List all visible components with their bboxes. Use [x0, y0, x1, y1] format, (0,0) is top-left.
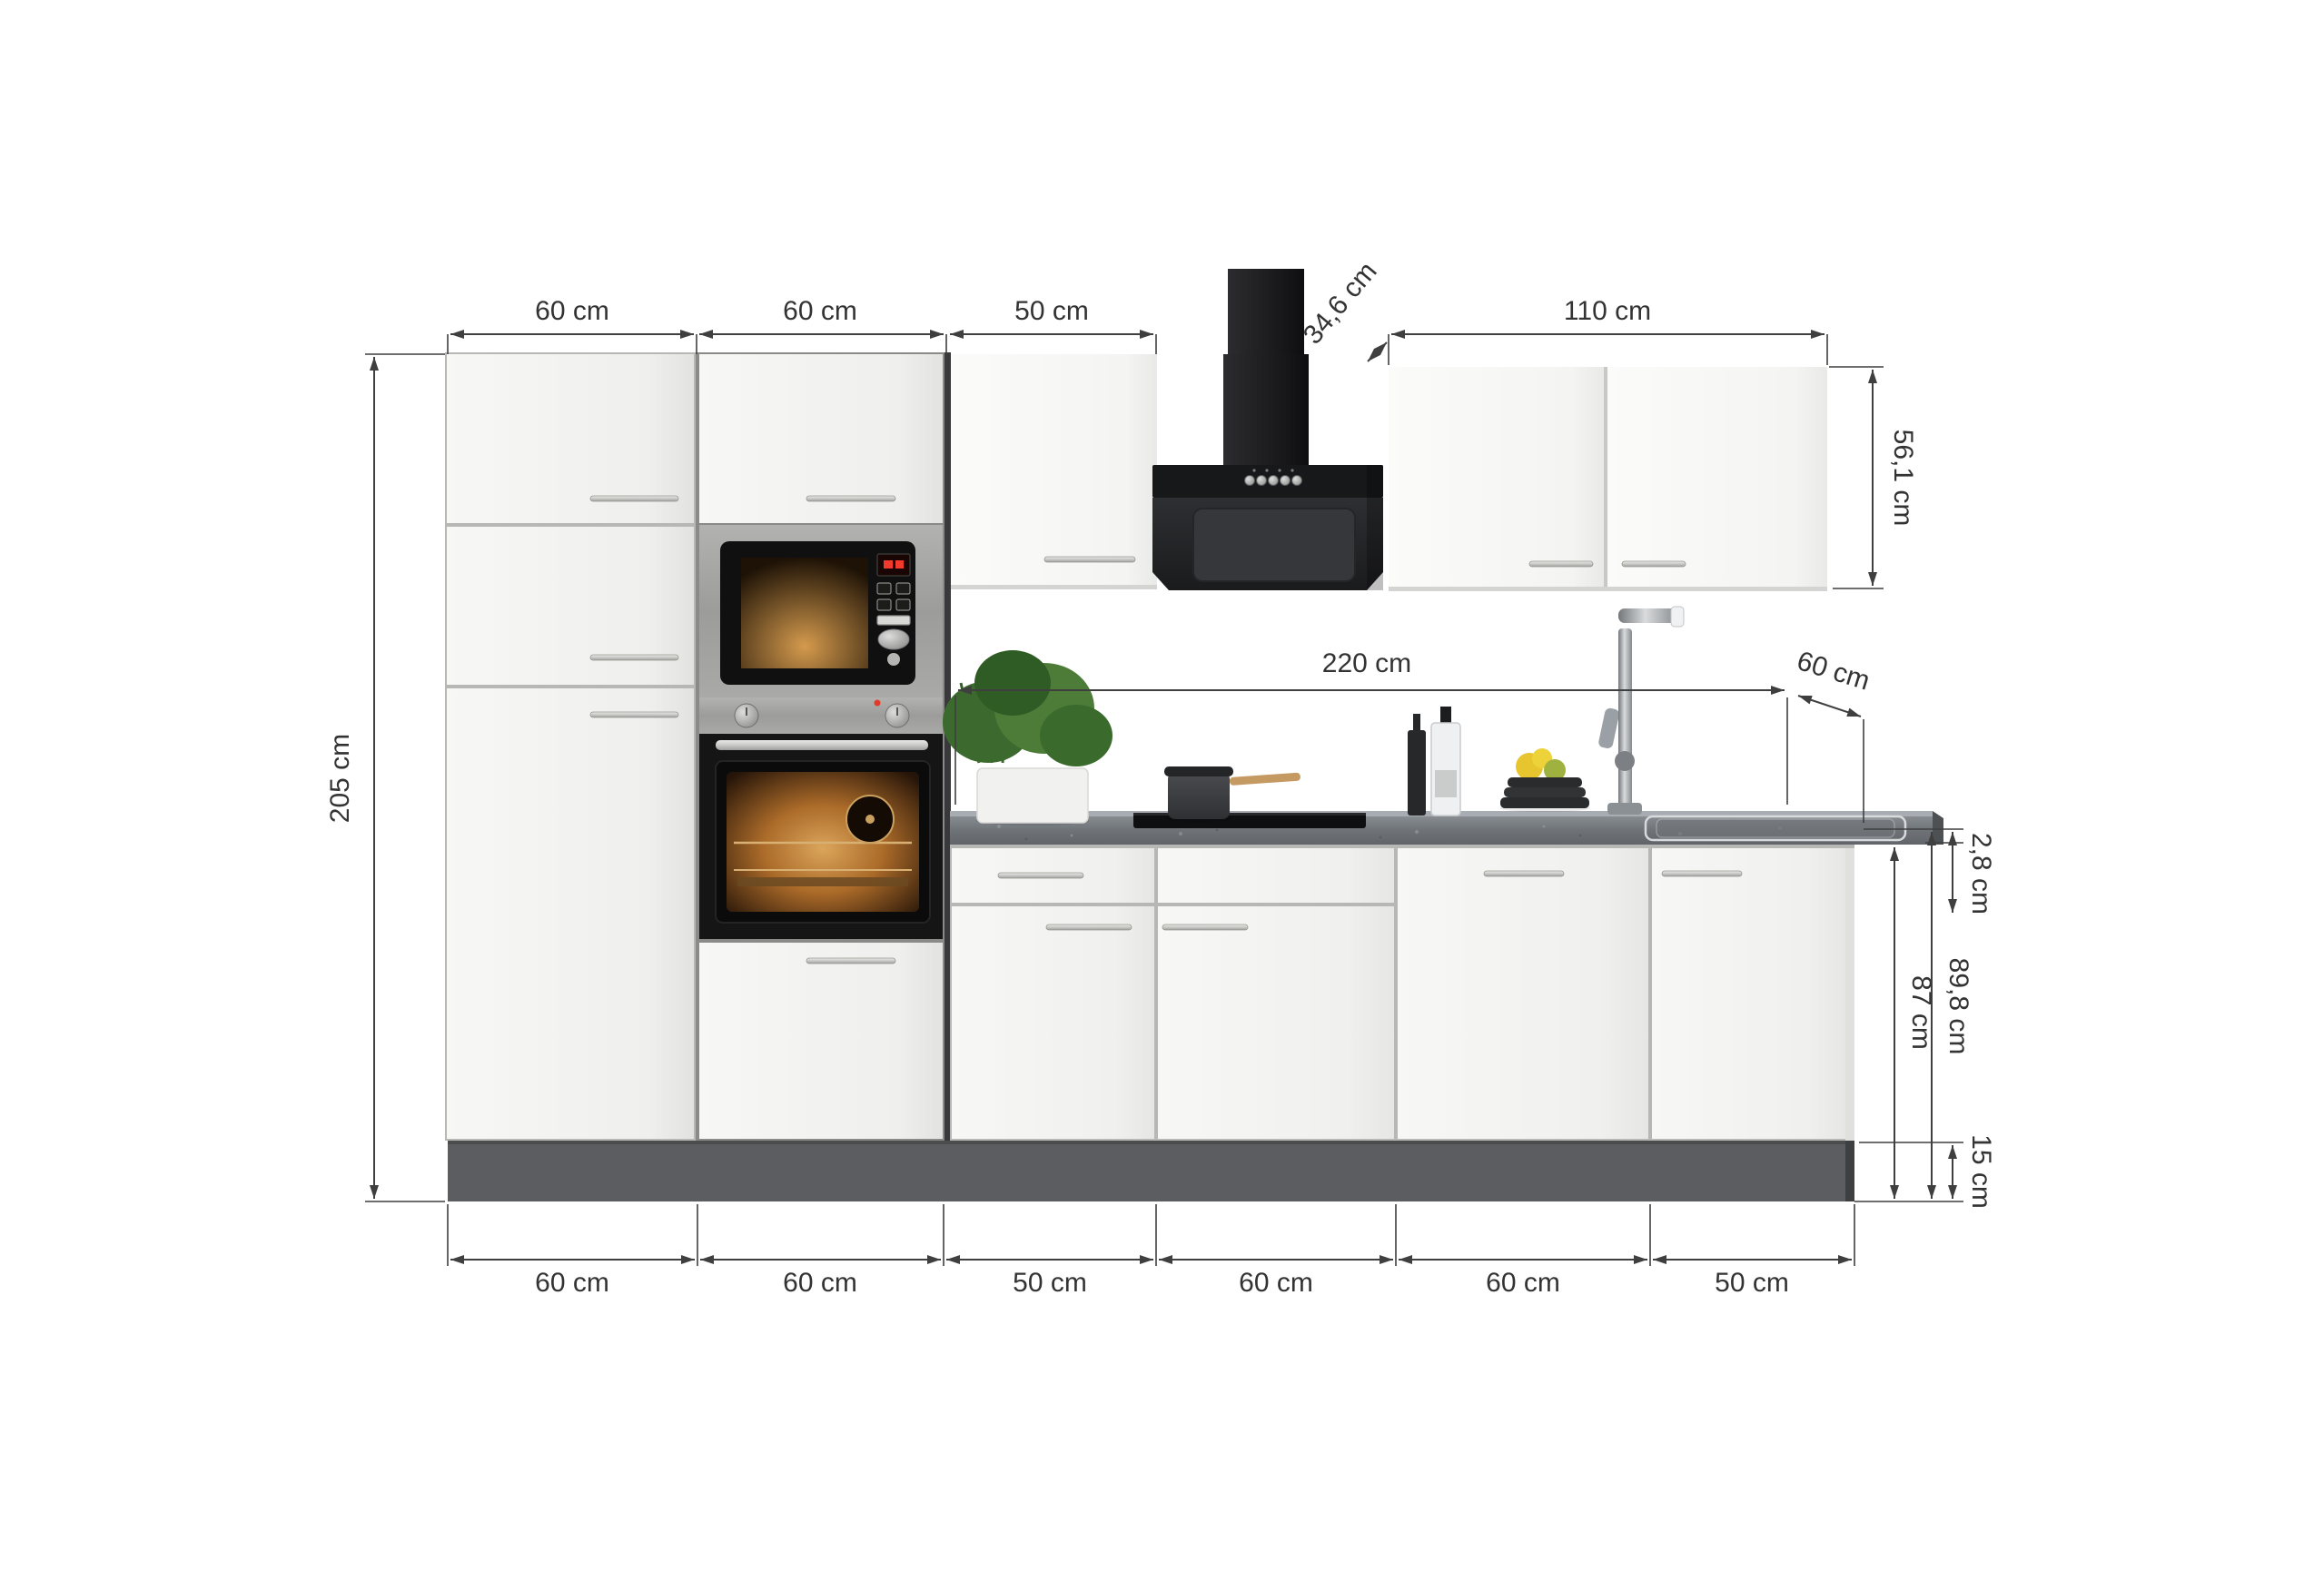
microwave	[699, 525, 943, 697]
dim-label-wall-depth: 34,6 cm	[1298, 256, 1383, 350]
wall-cabinet-110	[1389, 367, 1827, 591]
tower-door-bottom	[699, 943, 943, 1139]
herb-plant	[943, 650, 1113, 823]
faucet-lever	[1597, 707, 1620, 749]
dim-wall-cabinet-depth: 34,6 cm	[1298, 256, 1387, 361]
door-handle	[1046, 924, 1132, 930]
dim-label-worktop-height: 89,8 cm	[1943, 958, 1973, 1055]
door-handle	[806, 958, 895, 964]
door-handle	[1622, 561, 1686, 567]
door-handle	[1162, 924, 1248, 930]
oven-indicator-light	[875, 700, 881, 707]
base-door-50	[952, 906, 1154, 1139]
appliance-tower	[696, 352, 951, 1141]
door-handle	[590, 496, 678, 501]
wall-cabinet-50	[951, 354, 1157, 589]
dim-label-worktop-depth: 60 cm	[1794, 646, 1874, 696]
fruit-bowl	[1499, 748, 1590, 812]
dim-label-top-3: 50 cm	[1014, 296, 1089, 326]
tower-side-panel	[944, 352, 951, 1141]
oven-control-strip	[699, 697, 943, 734]
tall-cabinet	[445, 352, 697, 1141]
base-side-panel	[1845, 848, 1854, 1141]
plant-pot	[977, 768, 1088, 823]
dim-label-plinth-height: 15 cm	[1966, 1134, 1996, 1209]
dim-label-bottom-6: 50 cm	[1715, 1268, 1789, 1298]
dim-worktop-depth: 60 cm	[1787, 646, 1874, 823]
microwave-dial	[878, 629, 909, 649]
dim-label-top-2: 60 cm	[783, 296, 857, 326]
diagram-canvas: 60 cm 60 cm 50 cm 34,6 cm 110 cm 56,1 cm	[0, 0, 2324, 1582]
hood-chimney-lower	[1223, 354, 1309, 465]
door-handle	[806, 496, 895, 501]
extractor-hood	[1152, 269, 1383, 590]
dim-right-stack: 2,8 cm 87 cm 89,8 cm 15 cm	[1854, 829, 1996, 1209]
base-door-60-sink	[1398, 848, 1648, 1139]
worktop-accessories	[943, 607, 1684, 826]
door-handle	[590, 655, 678, 660]
dim-label-total-height: 205 cm	[325, 734, 355, 823]
dim-label-bottom-4: 60 cm	[1239, 1268, 1313, 1298]
dim-label-bottom-1: 60 cm	[535, 1268, 609, 1298]
dim-label-bottom-2: 60 cm	[783, 1268, 857, 1298]
dim-top-widths: 60 cm 60 cm 50 cm	[448, 296, 1156, 354]
oven-tray	[737, 877, 908, 886]
door-handle	[590, 712, 678, 717]
dim-wall-cabinet-height: 56,1 cm	[1829, 367, 1918, 588]
sink	[1646, 816, 1905, 840]
kitchen-dimension-diagram: 60 cm 60 cm 50 cm 34,6 cm 110 cm 56,1 cm	[0, 0, 2324, 1582]
kitchen-unit	[445, 269, 1943, 1201]
door-handle	[1044, 557, 1135, 562]
hood-chimney-upper	[1228, 269, 1304, 354]
plinth	[448, 1141, 1854, 1201]
faucet	[1597, 607, 1684, 815]
dim-label-worktop-thickness: 2,8 cm	[1966, 833, 1996, 915]
wall-cabinet-110-left-door	[1389, 367, 1604, 587]
base-front-hob	[1158, 848, 1394, 903]
tall-cabinet-door-middle	[447, 527, 694, 685]
oil-bottles	[1408, 707, 1460, 816]
door-handle	[1662, 871, 1742, 876]
plinth-side-cap	[1845, 1141, 1854, 1201]
dim-label-bottom-5: 60 cm	[1486, 1268, 1560, 1298]
base-door-60	[1158, 906, 1394, 1139]
dim-wall-cabinet-width: 110 cm	[1389, 296, 1827, 365]
oven-handle	[716, 740, 928, 750]
wall-cabinet-110-right-door	[1607, 367, 1827, 587]
door-handle	[1529, 561, 1593, 567]
dim-label-worktop-length: 220 cm	[1322, 648, 1411, 678]
oven	[699, 734, 943, 939]
dim-label-wall-width: 110 cm	[1564, 296, 1651, 326]
base-door-50-right	[1652, 848, 1845, 1139]
microwave-display	[877, 554, 910, 576]
tall-cabinet-door-bottom	[447, 688, 694, 1139]
door-handle	[1484, 871, 1564, 876]
dim-label-wall-height: 56,1 cm	[1888, 430, 1918, 527]
dim-total-height: 205 cm	[325, 354, 445, 1201]
dim-label-bottom-3: 50 cm	[1013, 1268, 1087, 1298]
pot-wooden-handle	[1230, 773, 1300, 786]
worktop-side-face	[1933, 811, 1943, 845]
dim-bottom-widths: 60 cm 60 cm 50 cm 60 cm 60 cm 50 cm	[448, 1204, 1854, 1298]
microwave-open-button	[887, 653, 900, 666]
drawer-handle	[998, 873, 1083, 878]
base-cabinets	[950, 845, 1854, 1141]
dim-label-top-1: 60 cm	[535, 296, 609, 326]
